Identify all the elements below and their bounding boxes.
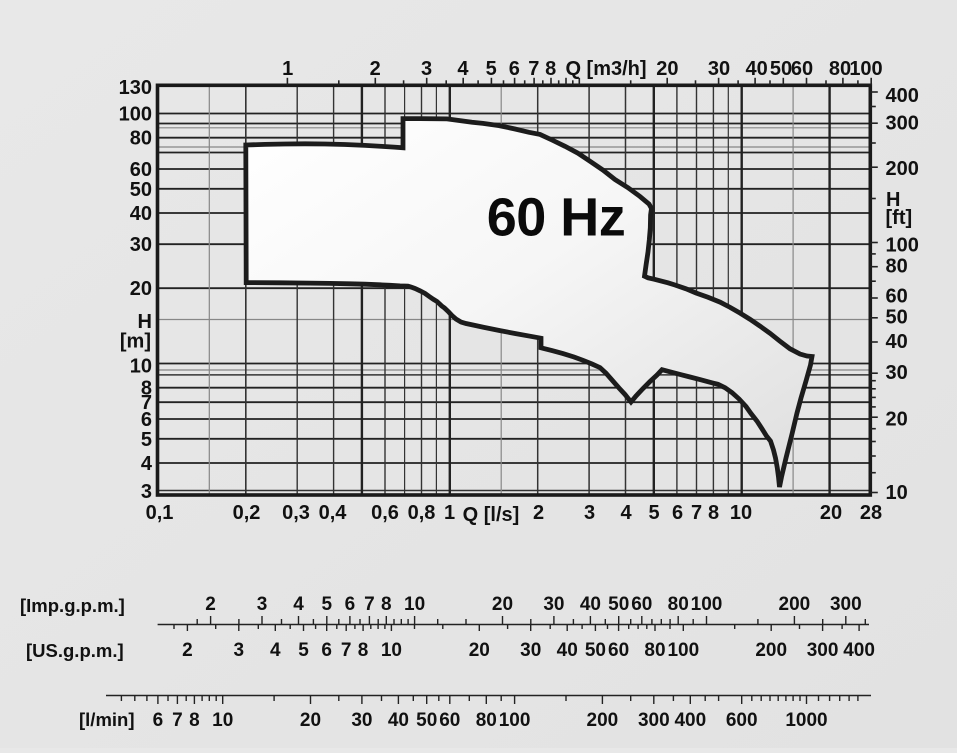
svg-text:30: 30 bbox=[886, 362, 908, 384]
svg-text:300: 300 bbox=[830, 594, 862, 615]
svg-text:50: 50 bbox=[130, 179, 152, 201]
svg-text:3: 3 bbox=[234, 640, 245, 661]
svg-text:6: 6 bbox=[509, 58, 520, 80]
svg-text:6: 6 bbox=[153, 710, 164, 731]
svg-text:8: 8 bbox=[545, 58, 556, 80]
svg-text:0,2: 0,2 bbox=[233, 502, 261, 524]
svg-text:0,4: 0,4 bbox=[319, 502, 348, 524]
svg-text:7: 7 bbox=[364, 594, 375, 615]
svg-text:20: 20 bbox=[469, 640, 490, 661]
svg-text:[Imp.g.p.m.]: [Imp.g.p.m.] bbox=[20, 595, 125, 616]
svg-text:100: 100 bbox=[849, 58, 882, 80]
svg-text:80: 80 bbox=[668, 594, 689, 615]
svg-text:20: 20 bbox=[492, 594, 513, 615]
svg-text:20: 20 bbox=[886, 409, 908, 431]
svg-text:10: 10 bbox=[886, 482, 908, 504]
svg-text:80: 80 bbox=[644, 640, 665, 661]
svg-text:100: 100 bbox=[499, 710, 531, 731]
svg-text:6: 6 bbox=[141, 409, 152, 431]
svg-text:2: 2 bbox=[533, 502, 544, 524]
svg-text:400: 400 bbox=[886, 85, 919, 107]
svg-text:3: 3 bbox=[421, 58, 432, 80]
svg-text:40: 40 bbox=[886, 331, 908, 353]
svg-text:7: 7 bbox=[172, 710, 183, 731]
svg-text:30: 30 bbox=[351, 710, 372, 731]
svg-text:60: 60 bbox=[791, 58, 813, 80]
svg-text:Q [l/s]: Q [l/s] bbox=[463, 504, 520, 526]
svg-text:8: 8 bbox=[708, 502, 719, 524]
svg-text:[l/min]: [l/min] bbox=[79, 709, 135, 730]
svg-text:60 Hz: 60 Hz bbox=[487, 188, 626, 248]
svg-text:50: 50 bbox=[886, 307, 908, 329]
svg-text:40: 40 bbox=[388, 710, 409, 731]
svg-text:30: 30 bbox=[543, 594, 564, 615]
svg-text:80: 80 bbox=[476, 710, 497, 731]
svg-text:2: 2 bbox=[182, 640, 193, 661]
svg-text:10: 10 bbox=[404, 594, 425, 615]
svg-text:60: 60 bbox=[130, 159, 152, 181]
svg-text:[ft]: [ft] bbox=[886, 207, 913, 229]
svg-text:600: 600 bbox=[726, 710, 758, 731]
svg-text:60: 60 bbox=[886, 286, 908, 308]
svg-text:4: 4 bbox=[620, 502, 632, 524]
svg-text:0,8: 0,8 bbox=[408, 502, 436, 524]
svg-text:5: 5 bbox=[322, 594, 333, 615]
svg-text:100: 100 bbox=[691, 594, 723, 615]
svg-text:30: 30 bbox=[520, 640, 541, 661]
svg-text:300: 300 bbox=[807, 640, 839, 661]
svg-text:80: 80 bbox=[130, 128, 152, 150]
svg-text:20: 20 bbox=[820, 502, 842, 524]
svg-text:300: 300 bbox=[638, 710, 670, 731]
svg-text:[US.g.p.m.]: [US.g.p.m.] bbox=[26, 640, 124, 661]
svg-text:5: 5 bbox=[298, 640, 309, 661]
svg-text:4: 4 bbox=[141, 453, 153, 475]
svg-text:40: 40 bbox=[745, 58, 767, 80]
svg-text:40: 40 bbox=[130, 203, 152, 225]
svg-text:4: 4 bbox=[457, 58, 469, 80]
svg-text:6: 6 bbox=[321, 640, 332, 661]
svg-text:50: 50 bbox=[770, 58, 792, 80]
svg-text:60: 60 bbox=[608, 640, 629, 661]
svg-text:3: 3 bbox=[257, 594, 268, 615]
svg-text:5: 5 bbox=[648, 502, 659, 524]
svg-text:5: 5 bbox=[486, 58, 497, 80]
svg-text:8: 8 bbox=[381, 594, 392, 615]
svg-text:50: 50 bbox=[585, 640, 606, 661]
svg-text:50: 50 bbox=[608, 594, 629, 615]
svg-text:20: 20 bbox=[300, 710, 321, 731]
svg-text:200: 200 bbox=[779, 594, 811, 615]
svg-text:10: 10 bbox=[381, 640, 402, 661]
svg-text:200: 200 bbox=[755, 640, 787, 661]
svg-text:2: 2 bbox=[205, 594, 216, 615]
svg-text:0,6: 0,6 bbox=[371, 502, 399, 524]
svg-text:0,1: 0,1 bbox=[146, 502, 174, 524]
svg-text:200: 200 bbox=[587, 710, 619, 731]
svg-text:2: 2 bbox=[370, 58, 381, 80]
svg-text:7: 7 bbox=[528, 58, 539, 80]
svg-text:0,3: 0,3 bbox=[282, 502, 310, 524]
svg-text:20: 20 bbox=[656, 58, 678, 80]
svg-text:1000: 1000 bbox=[785, 710, 827, 731]
svg-text:3: 3 bbox=[141, 481, 152, 503]
svg-text:30: 30 bbox=[708, 58, 730, 80]
svg-text:7: 7 bbox=[341, 640, 352, 661]
svg-text:20: 20 bbox=[130, 278, 152, 300]
svg-text:1: 1 bbox=[282, 58, 293, 80]
svg-text:40: 40 bbox=[580, 594, 601, 615]
svg-text:8: 8 bbox=[358, 640, 369, 661]
svg-text:400: 400 bbox=[843, 640, 875, 661]
svg-text:100: 100 bbox=[886, 235, 919, 257]
svg-text:80: 80 bbox=[886, 256, 908, 278]
svg-text:100: 100 bbox=[667, 640, 699, 661]
svg-text:28: 28 bbox=[860, 502, 882, 524]
svg-text:10: 10 bbox=[730, 502, 752, 524]
svg-text:5: 5 bbox=[141, 429, 152, 451]
svg-text:100: 100 bbox=[119, 104, 152, 126]
svg-text:Q [m3/h]: Q [m3/h] bbox=[565, 58, 646, 80]
svg-text:10: 10 bbox=[130, 356, 152, 378]
svg-text:50: 50 bbox=[416, 710, 437, 731]
svg-text:4: 4 bbox=[293, 594, 304, 615]
svg-text:[m]: [m] bbox=[120, 331, 151, 353]
svg-text:10: 10 bbox=[212, 710, 233, 731]
svg-text:40: 40 bbox=[557, 640, 578, 661]
svg-text:200: 200 bbox=[886, 158, 919, 180]
svg-text:30: 30 bbox=[130, 234, 152, 256]
svg-text:6: 6 bbox=[345, 594, 356, 615]
svg-text:7: 7 bbox=[691, 502, 702, 524]
svg-text:6: 6 bbox=[672, 502, 683, 524]
svg-text:300: 300 bbox=[886, 113, 919, 135]
svg-text:400: 400 bbox=[674, 710, 706, 731]
svg-text:60: 60 bbox=[631, 594, 652, 615]
svg-text:60: 60 bbox=[439, 710, 460, 731]
svg-text:1: 1 bbox=[444, 502, 455, 524]
svg-text:4: 4 bbox=[270, 640, 281, 661]
svg-text:3: 3 bbox=[584, 502, 595, 524]
svg-text:8: 8 bbox=[189, 710, 200, 731]
svg-text:130: 130 bbox=[119, 77, 152, 99]
svg-text:80: 80 bbox=[829, 58, 851, 80]
